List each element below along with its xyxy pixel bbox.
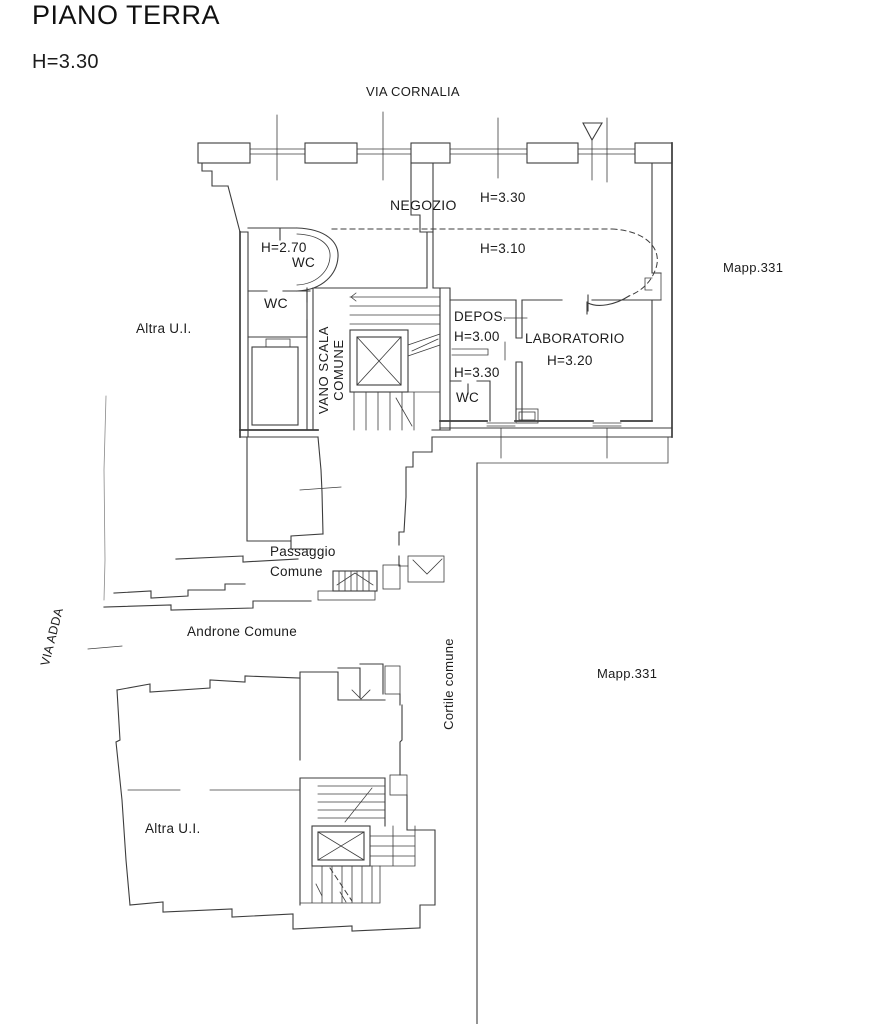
elevator-upper	[350, 330, 408, 392]
room-label-negozio: NEGOZIO	[390, 198, 457, 213]
boundary-line	[477, 437, 668, 1024]
room-label-stairwell: VANO SCALA COMUNE	[316, 322, 346, 418]
floor-height-note: H=3.30	[32, 55, 99, 70]
floor-plan-page: PIANO TERRA H=3.30 VIA CORNALIA NEGOZIO …	[0, 0, 882, 1024]
upper-left-walls	[104, 396, 298, 600]
shop-outline	[202, 163, 657, 311]
passage-walls	[318, 556, 444, 600]
room-label-wc-rear: WC	[456, 390, 479, 405]
right-exterior-wall	[652, 143, 672, 437]
page-title: PIANO TERRA	[32, 8, 220, 23]
room-label-wc-mid: WC	[264, 296, 288, 311]
room-label-depos: DEPOS.	[454, 309, 507, 324]
passaggio-label-line1: Passaggio	[270, 542, 336, 562]
passaggio-label-line2: Comune	[270, 562, 336, 582]
room-label-wc-front: WC	[292, 255, 315, 270]
room-label-androne: Androne Comune	[187, 624, 297, 639]
street-label-cornalia: VIA CORNALIA	[366, 84, 460, 99]
stairwell-lower	[300, 678, 415, 905]
room-label-cortile: Cortile comune	[441, 634, 456, 734]
parcel-label-upper: Mapp.331	[723, 260, 783, 275]
benchmark-triangle-icon	[583, 123, 602, 140]
lower-building-walls	[116, 664, 435, 931]
height-label-laboratorio: H=3.20	[547, 353, 593, 368]
height-label-negozio: H=3.30	[480, 190, 526, 205]
height-label-negozio-rear: H=3.10	[480, 241, 526, 256]
room-label-laboratorio: LABORATORIO	[525, 331, 625, 346]
floor-plan-drawing	[0, 0, 882, 1024]
unit-label-upper: Altra U.I.	[136, 321, 192, 336]
stairwell-label-line1: VANO SCALA	[316, 322, 331, 418]
parcel-label-lower: Mapp.331	[597, 666, 657, 681]
room-label-passaggio: Passaggio Comune	[270, 542, 336, 582]
height-label-wc-rear: H=3.30	[454, 365, 500, 380]
height-label-wc-front: H=2.70	[261, 240, 307, 255]
height-label-depos: H=3.00	[454, 329, 500, 344]
facade-wall	[198, 112, 672, 182]
elevator-lower	[312, 826, 370, 866]
stairwell-label-line2: COMUNE	[331, 322, 346, 418]
unit-label-lower: Altra U.I.	[145, 821, 201, 836]
